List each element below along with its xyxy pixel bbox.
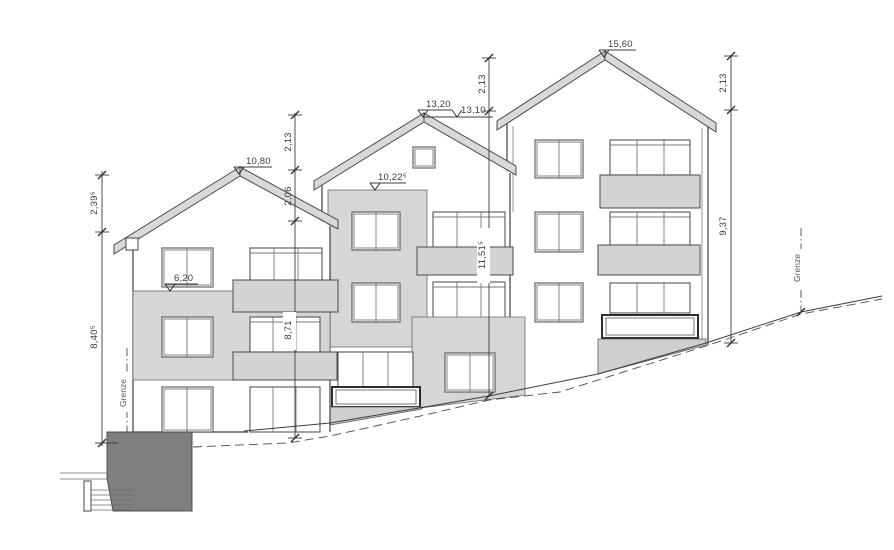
middle-balcony-slab: [417, 247, 513, 275]
right-balcony-door-f2: [610, 212, 690, 245]
level-label-left-ridge: 10,80: [246, 156, 271, 167]
elevation-sheet: Grenze Grenze 2,39⁵ 8,40⁵ 2,13 2,06 8,71: [0, 0, 894, 550]
boundary-left: Grenze: [118, 348, 132, 432]
dimension-right-line: 2,13 9,37: [718, 52, 738, 347]
right-balcony-slab-f1: [600, 175, 700, 208]
dimension-left-outer: 2,39⁵ 8,40⁵: [89, 171, 118, 447]
middle-ground-window: [338, 352, 413, 387]
level-marker-right-eaves: 13,10: [452, 105, 486, 117]
right-balcony-door-f3: [610, 283, 690, 313]
right-base-wedge: [598, 339, 706, 374]
right-balcony-door-f1: [610, 140, 690, 175]
level-label-right-ridge: 15,60: [608, 39, 633, 50]
right-balcony-slab-f2: [598, 245, 700, 275]
left-window-g1: [162, 387, 213, 432]
middle-bay-door-2: [433, 282, 505, 318]
right-balcony-railing: [602, 315, 698, 338]
building-middle: [314, 113, 525, 430]
level-label-middle-wall-top: 10,22⁵: [378, 172, 407, 183]
dim-label-left-roof: 2,39⁵: [89, 191, 100, 214]
dim-label-mid-facade: 8,71: [283, 320, 294, 339]
right-window-f3: [535, 283, 583, 322]
dim-label-mid-top: 2,13: [283, 132, 294, 151]
dim-label-right-top: 2,13: [718, 73, 729, 92]
dim-label-center-top: 2,13: [477, 74, 488, 93]
boundary-right: Grenze: [792, 228, 806, 316]
left-balcony-slab-lower: [233, 352, 337, 380]
level-label-left-floor: 6,20: [174, 273, 193, 284]
building-right: [497, 51, 716, 403]
left-eave-fascia: [126, 238, 138, 250]
boundary-label-right: Grenze: [792, 254, 802, 282]
dim-label-center-facade: 11,51⁵: [477, 241, 488, 269]
dim-label-right-facade: 9,37: [718, 216, 729, 235]
middle-window-u1: [352, 212, 400, 250]
dim-label-mid-eave: 2,06: [283, 186, 294, 205]
left-window-m1: [162, 317, 213, 357]
middle-bay-door-1: [433, 212, 505, 248]
middle-gable-window: [413, 147, 435, 168]
stair-post: [84, 481, 91, 511]
left-balcony-slab-upper: [233, 280, 338, 312]
right-window-f2: [535, 212, 583, 252]
middle-ground-railing: [332, 387, 420, 407]
dim-label-left-facade: 8,40⁵: [89, 325, 100, 348]
boundary-label-left: Grenze: [118, 379, 128, 407]
elevation-drawing: Grenze Grenze 2,39⁵ 8,40⁵ 2,13 2,06 8,71: [0, 0, 894, 550]
right-window-f1: [535, 140, 583, 178]
retaining-wall: [107, 432, 192, 511]
building-left: [114, 167, 338, 432]
middle-lower-window: [445, 353, 495, 392]
level-label-right-eaves: 13,10: [461, 105, 486, 116]
level-label-middle-ridge: 13,20: [426, 99, 451, 110]
middle-window-u2: [352, 283, 400, 322]
